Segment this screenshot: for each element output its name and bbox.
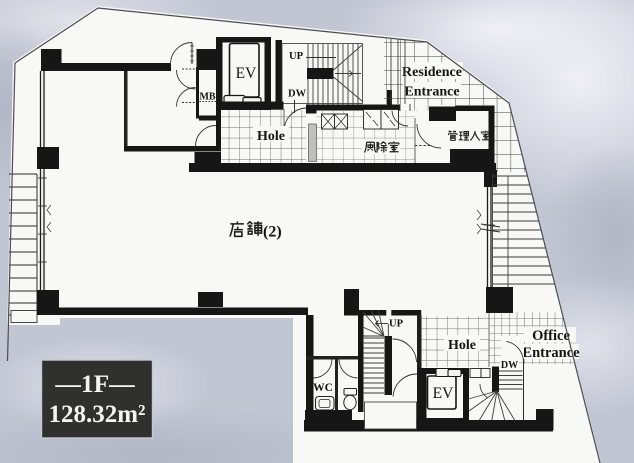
- svg-text:DW: DW: [501, 360, 518, 371]
- svg-text:128.32m²: 128.32m²: [48, 401, 145, 428]
- svg-text:UP: UP: [389, 319, 404, 330]
- svg-text:Entrance: Entrance: [404, 85, 459, 100]
- svg-text:(2): (2): [263, 224, 282, 241]
- svg-text:Hole: Hole: [257, 129, 285, 144]
- svg-text:Office: Office: [532, 328, 570, 344]
- svg-text:WC: WC: [313, 382, 333, 394]
- svg-text:—1F—: —1F—: [54, 369, 135, 398]
- svg-text:Hole: Hole: [448, 338, 476, 353]
- svg-text:EV: EV: [236, 65, 257, 82]
- svg-text:MB: MB: [199, 92, 215, 103]
- svg-text:Entrance: Entrance: [522, 345, 580, 361]
- svg-text:UP: UP: [289, 51, 304, 62]
- svg-text:EV: EV: [433, 385, 454, 402]
- svg-text:DW: DW: [288, 89, 307, 100]
- svg-text:Residence: Residence: [402, 65, 462, 80]
